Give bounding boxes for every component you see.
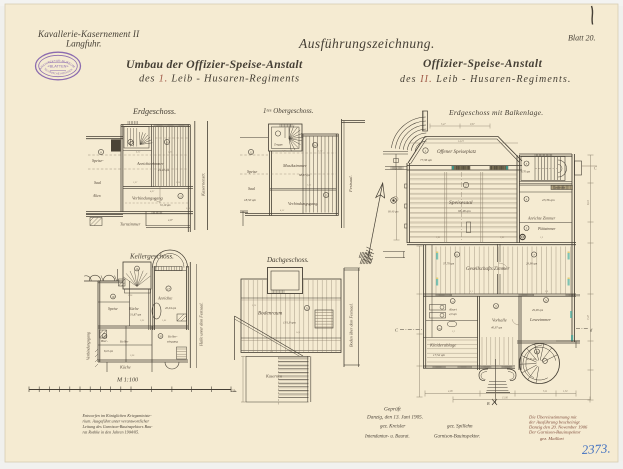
svg-text:Speisesaal: Speisesaal	[449, 200, 473, 206]
svg-text:15,00: 15,00	[502, 397, 509, 400]
svg-text:Verbindungsgang.: Verbindungsgang.	[288, 201, 318, 206]
svg-text:Keller-: Keller-	[167, 335, 178, 339]
svg-text:Danzig, den 13. Juni 1905.: Danzig, den 13. Juni 1905.	[366, 415, 423, 421]
svg-text:Festsaal.: Festsaal.	[348, 175, 353, 193]
svg-text:Keller: Keller	[119, 340, 129, 344]
svg-text:rat Rothke in den Jahren 1904/: rat Rothke in den Jahren 1904/05.	[83, 430, 140, 435]
svg-text:9,67: 9,67	[470, 123, 475, 126]
svg-text:5,11: 5,11	[543, 390, 548, 393]
svg-text:Kavallerie-Kasernement II: Kavallerie-Kasernement II	[37, 29, 140, 39]
svg-text:Anrichte Zimmer: Anrichte Zimmer	[527, 216, 556, 221]
svg-text:3,1: 3,1	[470, 290, 473, 293]
svg-text:Anrichtezimmer: Anrichtezimmer	[136, 161, 164, 166]
svg-text:Speise: Speise	[247, 169, 257, 174]
svg-text:Blatt 20.: Blatt 20.	[568, 34, 596, 43]
svg-text:Entworfen im Königlichen Krieg: Entworfen im Königlichen Kriegsministe-	[82, 413, 153, 418]
svg-text:Turnzimmer: Turnzimmer	[120, 222, 141, 227]
svg-text:Speise-: Speise-	[92, 158, 104, 163]
svg-text:rium. Ausgeführt unter verant: rium. Ausgeführt unter verantwortlicher	[83, 419, 150, 424]
svg-text:des II. Leib - Husaren-Regime: des II. Leib - Husaren-Regiments.	[400, 74, 571, 85]
svg-text:Der Garnison-Bauinspektor: Der Garnison-Bauinspektor	[528, 430, 581, 435]
svg-text:gez. Kreisler: gez. Kreisler	[380, 425, 405, 430]
svg-text:gez. Maillart: gez. Maillart	[540, 436, 564, 441]
svg-text:5,47: 5,47	[441, 123, 446, 126]
svg-text:4,07: 4,07	[168, 219, 173, 222]
svg-text:2373.: 2373.	[581, 442, 610, 457]
svg-text:Abort: Abort	[448, 308, 458, 312]
svg-text:Offener Speiseplatz: Offener Speiseplatz	[437, 150, 476, 155]
svg-text:Alten: Alten	[92, 194, 101, 198]
svg-text:8,10: 8,10	[587, 200, 590, 205]
svg-text:M 1:100: M 1:100	[116, 377, 139, 384]
svg-text:Umbau der Offizier-Speise-Anst: Umbau der Offizier-Speise-Anstalt	[126, 57, 303, 71]
svg-text:Kasernenstr.: Kasernenstr.	[201, 173, 206, 197]
svg-text:«BLATTEN»: «BLATTEN»	[47, 65, 68, 69]
svg-text:Garnison-Bauinspektor.: Garnison-Bauinspektor.	[434, 435, 480, 440]
svg-text:1,32: 1,32	[563, 390, 568, 393]
svg-text:4,00: 4,00	[448, 390, 453, 393]
svg-text:Gesellschafts Zimmer: Gesellschafts Zimmer	[466, 267, 510, 272]
svg-text:Halle unter dem Festsaal.: Halle unter dem Festsaal.	[199, 303, 204, 348]
svg-text:Garderobe: Garderobe	[553, 187, 566, 190]
svg-text:Dachgeschoss.: Dachgeschoss.	[266, 256, 309, 264]
svg-text:des 1. Leib - Husaren-Regimen: des 1. Leib - Husaren-Regiments	[139, 74, 300, 85]
svg-text:Bier-: Bier-	[101, 339, 108, 343]
svg-text:Anrichte: Anrichte	[157, 296, 173, 301]
svg-text:14,15: 14,15	[458, 140, 465, 143]
svg-text:Boden über dem Festsaal.: Boden über dem Festsaal.	[349, 303, 354, 347]
svg-text:4,70 qm: 4,70 qm	[521, 171, 530, 174]
svg-text:Musikzimmer: Musikzimmer	[282, 163, 307, 168]
svg-text:Bodenraum: Bodenraum	[258, 311, 282, 317]
svg-text:Küche: Küche	[119, 365, 131, 370]
svg-text:Verbindungsgang: Verbindungsgang	[132, 196, 164, 201]
svg-text:Plättzimmer: Plättzimmer	[537, 227, 556, 231]
svg-text:4,9 qm: 4,9 qm	[449, 313, 457, 316]
svg-text:31,10 qm: 31,10 qm	[160, 204, 170, 207]
svg-text:Saal: Saal	[248, 186, 256, 191]
svg-text:1tes Obergeschoss.: 1tes Obergeschoss.	[263, 107, 314, 115]
svg-text:4,40 qm: 4,40 qm	[527, 358, 536, 361]
svg-text:Erdgeschoss.: Erdgeschoss.	[132, 107, 176, 116]
svg-text:eingang: eingang	[167, 340, 178, 344]
svg-text:Kasernen: Kasernen	[265, 374, 282, 379]
svg-text:C: C	[594, 166, 597, 171]
svg-text:Lesezimmer: Lesezimmer	[529, 317, 551, 322]
svg-text:Leitung des Garnison-Bauinspek: Leitung des Garnison-Bauinspektors Bau-	[82, 424, 154, 429]
svg-text:Erdgeschoss mit Balkenlage.: Erdgeschoss mit Balkenlage.	[448, 108, 543, 117]
svg-text:Offizier-Speise-Anstalt: Offizier-Speise-Anstalt	[423, 58, 543, 70]
svg-text:Saal: Saal	[94, 180, 102, 185]
svg-text:Küche: Küche	[128, 307, 139, 311]
svg-text:Vorhalle: Vorhalle	[492, 318, 507, 323]
svg-text:Geprüft: Geprüft	[384, 406, 401, 413]
svg-text:Speise: Speise	[108, 307, 118, 311]
svg-text:Treppe: Treppe	[274, 143, 283, 147]
svg-text:gez. Spillehn: gez. Spillehn	[447, 425, 473, 430]
svg-text:69,40 qm: 69,40 qm	[388, 211, 398, 214]
svg-text:Ausführungszeichnung.: Ausführungszeichnung.	[298, 36, 435, 51]
svg-text:Intendantur- u. Baurat.: Intendantur- u. Baurat.	[364, 435, 410, 440]
svg-text:8,10 qm: 8,10 qm	[104, 350, 113, 353]
svg-text:Kleiderablage: Kleiderablage	[429, 343, 456, 348]
svg-text:Langfuhr.: Langfuhr.	[65, 39, 101, 49]
svg-text:Verbindungsgang: Verbindungsgang	[86, 332, 91, 360]
svg-text:7,47: 7,47	[587, 315, 590, 320]
